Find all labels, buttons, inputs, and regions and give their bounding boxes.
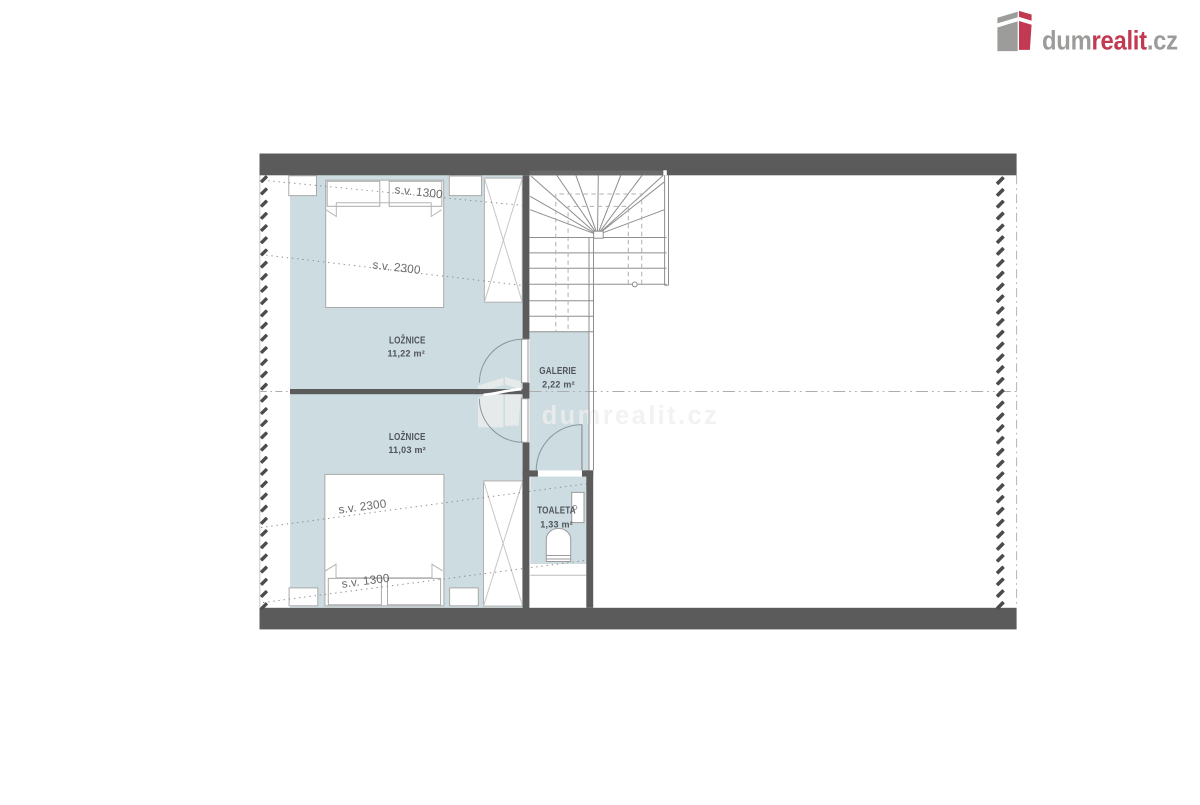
svg-text:TOALETA: TOALETA — [537, 504, 576, 515]
svg-text:11,03 m²: 11,03 m² — [388, 445, 426, 455]
svg-text:LOŽNICE: LOŽNICE — [389, 430, 426, 442]
svg-text:11,22 m²: 11,22 m² — [388, 348, 426, 358]
svg-text:dumrealit.cz: dumrealit.cz — [1042, 26, 1178, 55]
svg-text:2,22 m²: 2,22 m² — [542, 380, 575, 390]
svg-text:GALERIE: GALERIE — [539, 365, 576, 376]
svg-text:LOŽNICE: LOŽNICE — [389, 334, 426, 346]
svg-text:dumrealit.cz: dumrealit.cz — [542, 402, 720, 430]
svg-text:1,33 m²: 1,33 m² — [540, 519, 573, 529]
